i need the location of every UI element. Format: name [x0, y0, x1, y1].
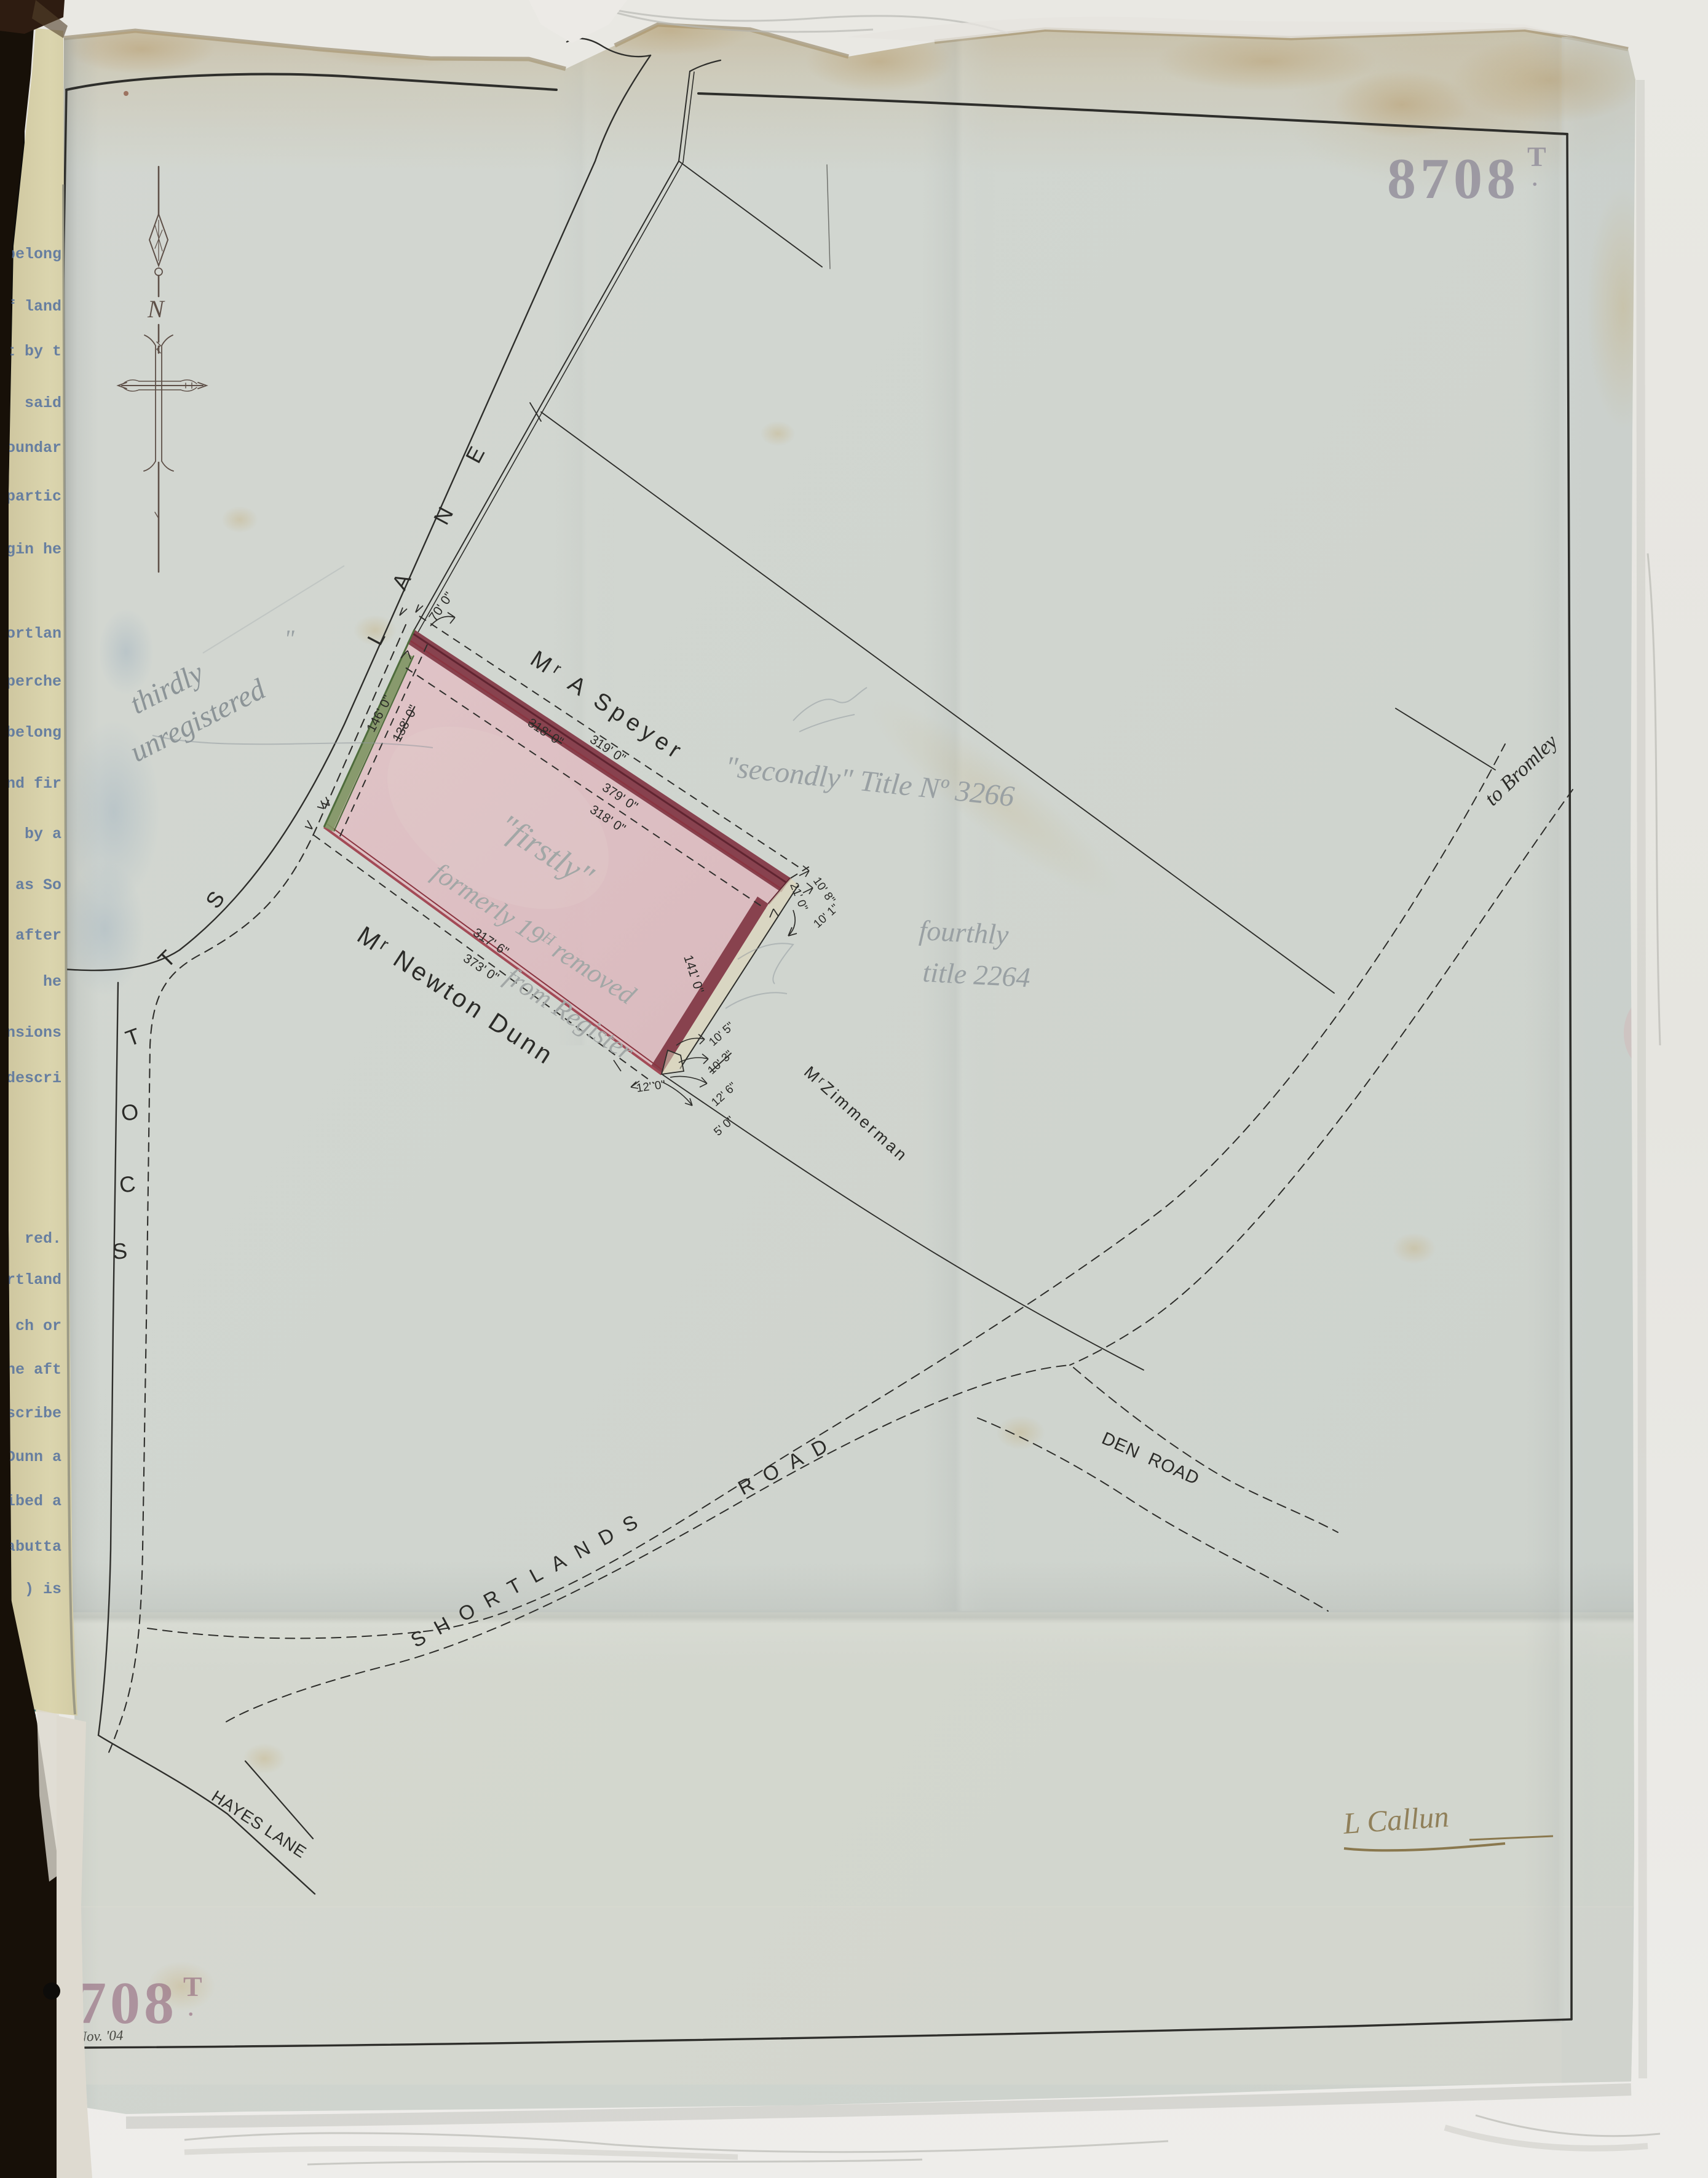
svg-text:ch or: ch or [15, 1317, 61, 1335]
svg-text:belong: belong [6, 245, 61, 263]
svg-text:said: said [25, 394, 61, 412]
svg-text:perche: perche [6, 673, 61, 691]
svg-text:ne aft: ne aft [6, 1361, 61, 1379]
svg-text:.: . [188, 1998, 194, 2021]
svg-text:descri: descri [6, 1069, 61, 1087]
svg-text:S: S [111, 1238, 128, 1264]
svg-text:N: N [147, 295, 165, 323]
svg-text:he: he [43, 973, 61, 991]
svg-text:": " [284, 625, 295, 652]
svg-text:abutta: abutta [6, 1538, 61, 1556]
svg-text:nsions: nsions [6, 1024, 61, 1042]
svg-text:708: 708 [76, 1970, 178, 2037]
svg-text:8708: 8708 [1387, 147, 1520, 211]
svg-text:gin he: gin he [6, 541, 61, 558]
svg-text:belong: belong [6, 724, 61, 742]
svg-text:red.: red. [25, 1230, 61, 1248]
svg-text:title 2264: title 2264 [922, 956, 1030, 993]
svg-text:ortlan: ortlan [6, 625, 61, 643]
svg-text:fourthly: fourthly [918, 914, 1010, 951]
svg-text:partic: partic [6, 488, 61, 505]
svg-text:scribe: scribe [6, 1404, 61, 1422]
svg-text:by a: by a [25, 825, 61, 843]
svg-text:Dunn a: Dunn a [6, 1448, 61, 1466]
svg-text:as So: as So [15, 876, 61, 894]
svg-text:) is: ) is [25, 1580, 61, 1598]
svg-text:rtland: rtland [6, 1271, 61, 1289]
svg-text:ibed a: ibed a [6, 1492, 61, 1510]
svg-text:oundar: oundar [6, 439, 61, 457]
svg-text:after: after [15, 927, 61, 944]
svg-text:.: . [1532, 168, 1538, 191]
svg-text:nd fir: nd fir [6, 775, 61, 793]
